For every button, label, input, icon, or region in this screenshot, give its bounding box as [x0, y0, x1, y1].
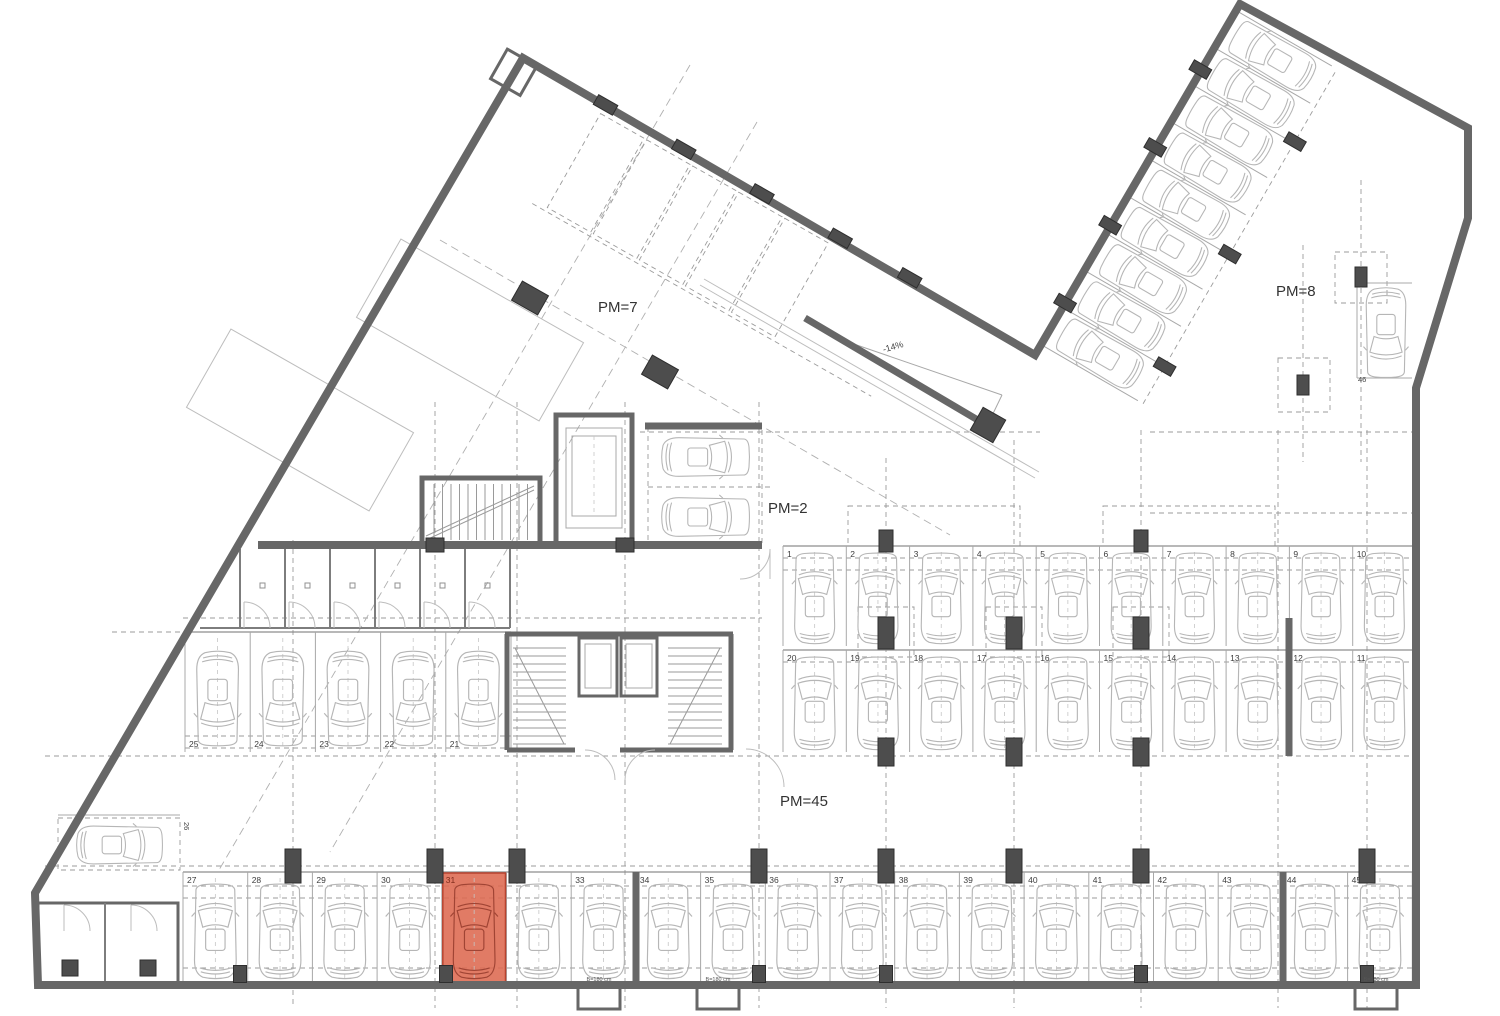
- stall-number: 30: [381, 875, 391, 885]
- stall-number: 35: [705, 875, 715, 885]
- stall-number: 40: [1028, 875, 1038, 885]
- stall-number: 7: [1167, 549, 1172, 559]
- stall-number: 41: [1093, 875, 1103, 885]
- stall-number: 13: [1230, 653, 1240, 663]
- parking-stall-24[interactable]: 24: [254, 638, 306, 749]
- car-outline: [1363, 288, 1408, 378]
- stall-number: 33: [575, 875, 585, 885]
- parking-stall-45[interactable]: 45: [1352, 875, 1404, 981]
- car-outline: [918, 657, 965, 750]
- parking-stall-20[interactable]: 20: [787, 653, 838, 750]
- stall-number: 5: [1040, 549, 1045, 559]
- car-outline: [981, 657, 1028, 750]
- stall-number: 18: [914, 653, 924, 663]
- stall-number: 8: [1230, 549, 1235, 559]
- parking-stall-9[interactable]: 9: [1293, 549, 1343, 644]
- stall-number-46: 46: [1358, 375, 1366, 384]
- car-outline: [918, 553, 964, 644]
- floor-plan: 1234567891020191817161514131211252423222…: [0, 0, 1500, 1016]
- zone-label-pm45: PM=45: [780, 793, 828, 810]
- stall-number: 31: [446, 875, 456, 885]
- stall-number: 25: [189, 739, 199, 749]
- niche-width-label: B=180 cm: [1364, 977, 1389, 983]
- stall-number: 43: [1222, 875, 1232, 885]
- niche-width-label: B=180 cm: [706, 977, 731, 983]
- parking-stall-35[interactable]: 35: [705, 875, 757, 981]
- stall-number: 3: [914, 549, 919, 559]
- stall-number: 1: [787, 549, 792, 559]
- stall-number: 19: [850, 653, 860, 663]
- parking-stall-40[interactable]: 40: [1028, 875, 1080, 981]
- parking-stall-43[interactable]: 43: [1222, 875, 1274, 981]
- stall-number: 21: [450, 739, 460, 749]
- car-outline: [1224, 16, 1322, 98]
- stall-number: 38: [899, 875, 909, 885]
- parking-stall-33[interactable]: 33: [575, 875, 627, 981]
- stall-number-26: 26: [182, 822, 191, 830]
- stall-number: 6: [1104, 549, 1109, 559]
- parking-stall-7[interactable]: 7: [1167, 549, 1217, 644]
- stall-number: 9: [1293, 549, 1298, 559]
- parking-stall-17[interactable]: 17: [977, 653, 1028, 750]
- parking-stall-3[interactable]: 3: [914, 549, 964, 644]
- stall-number: 11: [1357, 653, 1366, 663]
- stall-number: 34: [640, 875, 650, 885]
- parking-stall-29[interactable]: 29: [316, 875, 368, 981]
- parking-stall-32[interactable]: 32: [511, 875, 563, 981]
- stair-elevator-cores: [38, 415, 1397, 1009]
- stall-number: 27: [187, 875, 197, 885]
- parking-stall-19[interactable]: 19: [850, 653, 901, 750]
- parking-stall-30[interactable]: 30: [381, 875, 433, 981]
- columns: [234, 60, 1376, 983]
- car-outline: [1045, 657, 1092, 750]
- parking-stall-22[interactable]: 22: [385, 638, 437, 749]
- parking-stall-18[interactable]: 18: [914, 653, 965, 750]
- stall-number: 14: [1167, 653, 1177, 663]
- stall-number: 22: [385, 739, 395, 749]
- car-outline: [855, 657, 902, 750]
- parking-stall-34[interactable]: 34: [640, 875, 692, 981]
- parking-stall-14[interactable]: 14: [1167, 653, 1218, 750]
- parking-stall-15[interactable]: 15: [1104, 653, 1155, 750]
- car-outline: [791, 657, 838, 750]
- stall-number: 29: [316, 875, 326, 885]
- car-outline: [792, 553, 838, 644]
- stall-number: 36: [769, 875, 779, 885]
- stall-number: 2: [850, 549, 855, 559]
- car-outline: [1362, 553, 1408, 644]
- parking-stall-25[interactable]: 25: [189, 638, 241, 749]
- car-outline: [1298, 553, 1344, 644]
- zone-label-pm2: PM=2: [768, 500, 808, 517]
- parking-stall-10[interactable]: 10: [1357, 549, 1407, 644]
- parking-stall-21[interactable]: 21: [450, 638, 502, 749]
- stall-number: 16: [1040, 653, 1050, 663]
- car-outline: [1298, 657, 1345, 750]
- stall-number: 44: [1287, 875, 1297, 885]
- parking-stall-12[interactable]: 12: [1293, 653, 1344, 750]
- parking-stall-16[interactable]: 16: [1040, 653, 1091, 750]
- parking-stall-36[interactable]: 36: [769, 875, 821, 981]
- ramp-slope-label: -14%: [882, 339, 905, 354]
- stall-number: 12: [1293, 653, 1303, 663]
- car-outline: [662, 495, 750, 539]
- labels: PM=7 PM=8 PM=2 PM=45 -14% 46 26 B=180 cm…: [182, 283, 1389, 983]
- parking-stall-37[interactable]: 37: [834, 875, 886, 981]
- car-outline: [662, 435, 750, 479]
- grid-axes: [45, 65, 1412, 1008]
- parking-stall-42[interactable]: 42: [1158, 875, 1210, 981]
- niche-width-label: B=180 cm: [587, 977, 612, 983]
- car-outline: [1172, 553, 1218, 644]
- parking-stall-39[interactable]: 39: [963, 875, 1015, 981]
- stall-number: 4: [977, 549, 982, 559]
- stall-number: 20: [787, 653, 797, 663]
- parking-stall-13[interactable]: 13: [1230, 653, 1281, 750]
- parking-stall-44[interactable]: 44: [1287, 875, 1339, 981]
- parking-stall-1[interactable]: 1: [787, 549, 837, 644]
- stall-number: 10: [1357, 549, 1367, 559]
- parking-stall-5[interactable]: 5: [1040, 549, 1090, 644]
- car-outline: [256, 884, 304, 979]
- car-outline: [77, 823, 163, 866]
- car-outline: [580, 884, 628, 979]
- zone-label-pm7: PM=7: [598, 299, 638, 316]
- stall-number: 24: [254, 739, 264, 749]
- parking-stall-27[interactable]: 27: [187, 875, 239, 981]
- stall-number: 23: [319, 739, 329, 749]
- parking-stall-11[interactable]: 11: [1357, 653, 1408, 750]
- stall-number: 37: [834, 875, 844, 885]
- parking-rows: 1234567891020191817161514131211252423222…: [183, 546, 1416, 985]
- car-outline: [1235, 553, 1281, 644]
- parking-stall-38[interactable]: 38: [899, 875, 951, 981]
- zone-label-pm8: PM=8: [1276, 283, 1316, 300]
- parking-stall-28[interactable]: 28: [252, 875, 304, 981]
- car-outline: [1291, 884, 1339, 979]
- stall-number: 17: [977, 653, 987, 663]
- car-outline: [1361, 657, 1408, 750]
- car-outline: [1108, 657, 1155, 750]
- stall-number: 15: [1104, 653, 1114, 663]
- car-outline: [1234, 657, 1281, 750]
- structural-walls: [35, 4, 1468, 985]
- stall-number: 42: [1158, 875, 1168, 885]
- parking-stall-23[interactable]: 23: [319, 638, 371, 749]
- car-outline: [1171, 657, 1218, 750]
- floor-plan-canvas: 1234567891020191817161514131211252423222…: [0, 0, 1500, 1016]
- stall-number: 39: [963, 875, 973, 885]
- car-outline: [1045, 553, 1091, 644]
- parking-stall-8[interactable]: 8: [1230, 549, 1280, 644]
- stall-number: 28: [252, 875, 262, 885]
